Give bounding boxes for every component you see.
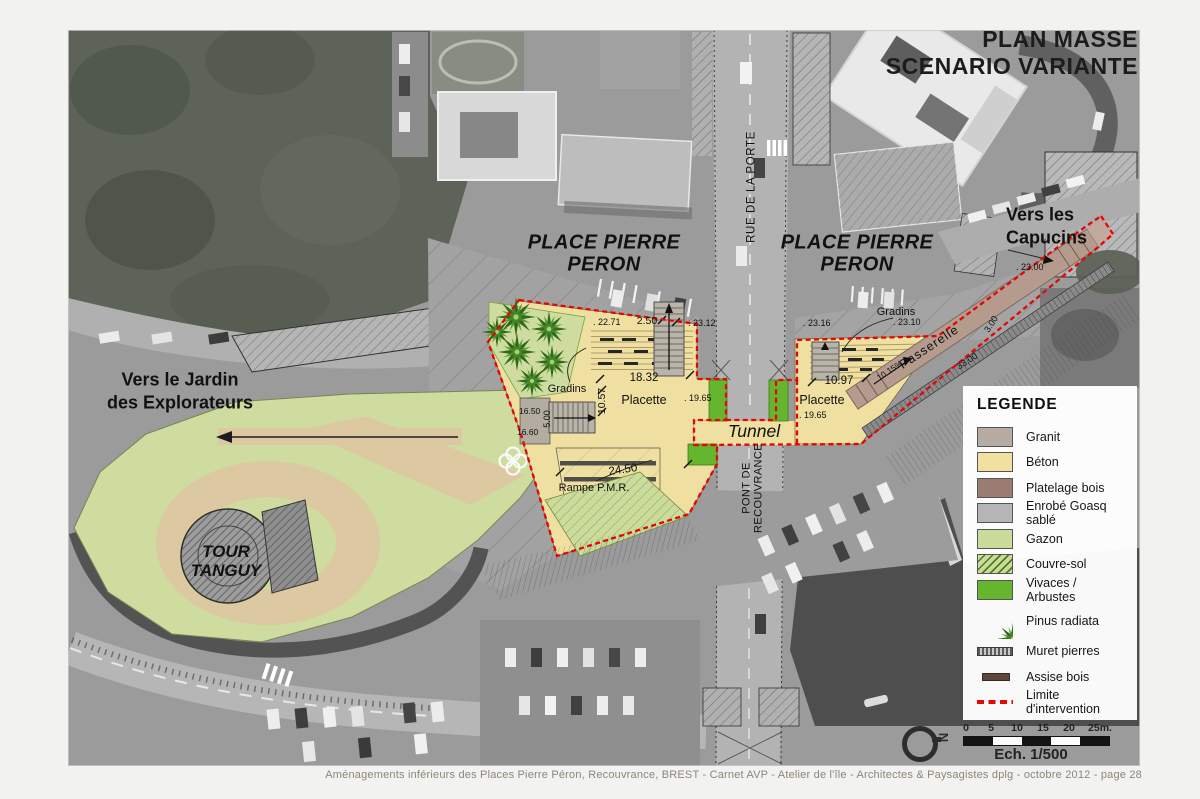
gazon-swatch <box>977 529 1013 549</box>
level-1965-left: . 19.65 <box>684 393 712 403</box>
scale-tick-15: 15 <box>1037 722 1049 734</box>
platelage-swatch <box>977 478 1013 498</box>
level-2271: . 22.71 <box>593 317 621 327</box>
level-2300: . 23.00 <box>1016 262 1044 272</box>
legend-item-beton: Béton <box>977 450 1125 476</box>
legend-item-assise: Assise bois <box>977 664 1125 690</box>
sheet-title: PLAN MASSE SCENARIO VARIANTE <box>886 26 1138 80</box>
sheet-title-line2: SCENARIO VARIANTE <box>886 53 1138 80</box>
level-2316: . 23.16 <box>803 318 831 328</box>
couvre-sol-swatch <box>977 554 1013 574</box>
sheet-title-line1: PLAN MASSE <box>886 26 1138 53</box>
level-2312: . 23.12 <box>688 318 716 328</box>
scale-tick-25: 25m. <box>1088 722 1112 734</box>
legend-item-vivaces: Vivaces / Arbustes <box>977 577 1125 603</box>
sheet-footer: Aménagements inférieurs des Places Pierr… <box>325 769 1142 781</box>
level-1660: 16.60 <box>517 427 538 437</box>
scale-tick-5: 5 <box>988 722 994 734</box>
scale-caption: Ech. 1/500 <box>994 746 1067 763</box>
assise-bois-swatch <box>982 673 1010 681</box>
legend-item-enrobe: Enrobé Goasq sablé <box>977 501 1125 527</box>
limite-intervention-swatch <box>977 700 1013 704</box>
legend-panel: LEGENDE Granit Béton Platelage bois Enro… <box>963 386 1137 720</box>
scale-bar <box>963 736 1110 746</box>
north-arrow-icon <box>902 726 938 762</box>
level-1650: 16.50 <box>519 406 540 416</box>
legend-item-platelage: Platelage bois <box>977 475 1125 501</box>
legend-item-couvre-sol: Couvre-sol <box>977 552 1125 578</box>
legend-item-granit: Granit <box>977 424 1125 450</box>
beton-swatch <box>977 452 1013 472</box>
legend-item-pinus: Pinus radiata <box>977 603 1125 639</box>
muret-pierres-swatch <box>977 647 1013 656</box>
scale-tick-20: 20 <box>1063 722 1075 734</box>
dim-500: 5.00 <box>542 410 552 428</box>
pinus-radiata-icon <box>977 611 1013 631</box>
dim-1097: 10.97 <box>825 375 854 387</box>
vivaces-swatch <box>977 580 1013 600</box>
north-letter: N <box>936 733 951 742</box>
dim-1832: 18.32 <box>630 372 659 384</box>
granit-swatch <box>977 427 1013 447</box>
legend-title: LEGENDE <box>977 396 1125 414</box>
legend-item-gazon: Gazon <box>977 526 1125 552</box>
legend-item-muret: Muret pierres <box>977 639 1125 665</box>
level-2310: . 23.10 <box>893 317 921 327</box>
scale-tick-10: 10 <box>1011 722 1023 734</box>
dim-250: 2.50 <box>637 315 657 327</box>
legend-item-limite: Limite d'intervention <box>977 690 1125 716</box>
dim-1057: 10.57 <box>596 388 608 414</box>
level-1965-right: . 19.65 <box>799 410 827 420</box>
enrobe-swatch <box>977 503 1013 523</box>
scale-tick-0: 0 <box>963 722 969 734</box>
plan-sheet: PLAN MASSE SCENARIO VARIANTE PLACE PIERR… <box>0 0 1200 799</box>
